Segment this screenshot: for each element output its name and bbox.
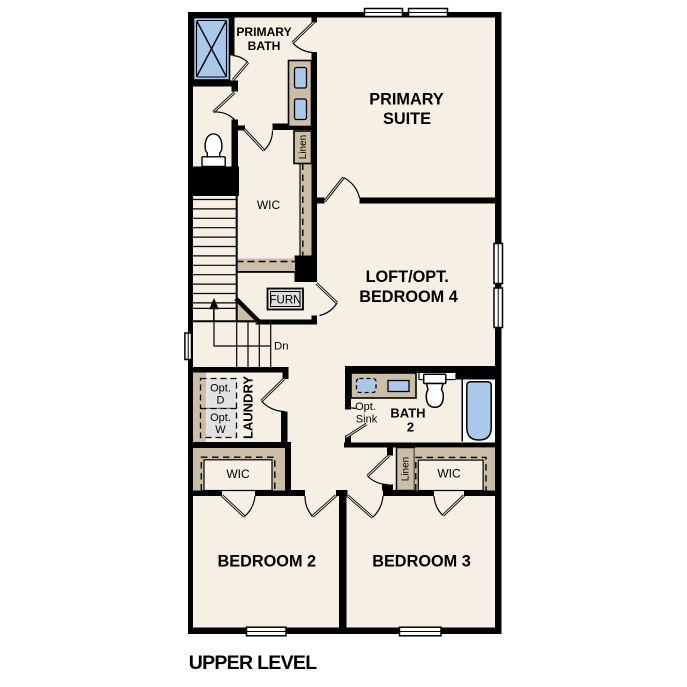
svg-text:LOFT/OPT.: LOFT/OPT. [366,268,449,286]
svg-text:WIC: WIC [226,467,250,481]
svg-text:BATH: BATH [390,405,425,420]
svg-text:D: D [217,395,225,407]
svg-text:Opt.: Opt. [210,412,231,424]
svg-text:Dn: Dn [274,341,289,353]
svg-text:BEDROOM 3: BEDROOM 3 [372,553,471,571]
svg-text:WIC: WIC [437,467,461,481]
svg-text:PRIMARY: PRIMARY [236,25,291,39]
svg-text:Opt.: Opt. [355,401,376,413]
svg-text:Linen: Linen [401,457,412,481]
svg-text:LAUNDRY: LAUNDRY [240,376,255,439]
svg-text:Linen: Linen [298,135,309,159]
svg-text:SUITE: SUITE [383,110,431,128]
svg-text:W: W [215,424,226,436]
svg-text:PRIMARY: PRIMARY [369,91,444,109]
svg-text:BATH: BATH [248,39,281,53]
svg-text:Opt.: Opt. [210,383,231,395]
svg-text:Sink: Sink [356,414,378,426]
svg-text:WIC: WIC [257,198,281,212]
svg-text:2: 2 [407,420,414,435]
svg-text:FURN: FURN [270,295,302,307]
svg-text:UPPER LEVEL: UPPER LEVEL [189,652,318,674]
svg-text:BEDROOM 4: BEDROOM 4 [359,288,458,306]
svg-text:BEDROOM 2: BEDROOM 2 [217,553,316,571]
